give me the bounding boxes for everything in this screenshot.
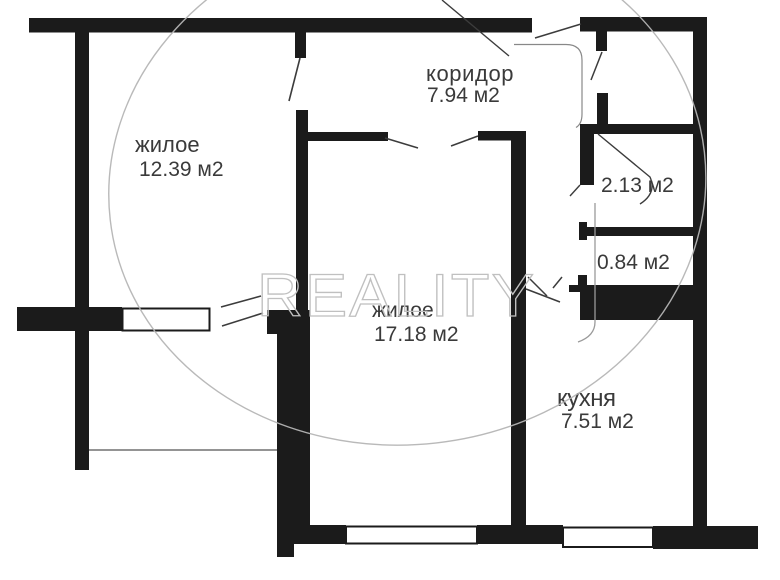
svg-text:2.13 м2: 2.13 м2: [601, 174, 674, 197]
svg-text:7.94 м2: 7.94 м2: [427, 84, 500, 107]
svg-text:коридор: коридор: [426, 61, 514, 86]
svg-text:REALITY: REALITY: [257, 262, 536, 329]
svg-text:12.39 м2: 12.39 м2: [139, 158, 224, 181]
svg-text:0.84 м2: 0.84 м2: [597, 251, 670, 274]
svg-text:7.51 м2: 7.51 м2: [561, 410, 634, 433]
svg-text:жилое: жилое: [135, 132, 200, 157]
